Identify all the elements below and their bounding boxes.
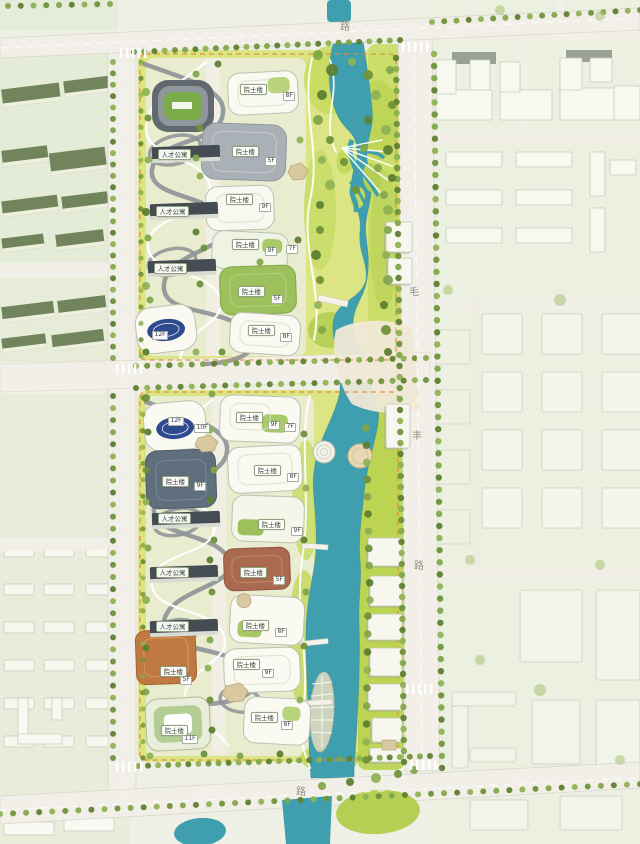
right-context-blocks xyxy=(428,0,640,844)
masterplan-canvas: 路 毛 丰 路 路 院士楼8F院士楼5F院士楼9F院士楼9F7F院士楼5F院士楼… xyxy=(0,0,640,844)
stadium-building xyxy=(152,80,214,132)
site-plan-artwork xyxy=(0,0,640,844)
